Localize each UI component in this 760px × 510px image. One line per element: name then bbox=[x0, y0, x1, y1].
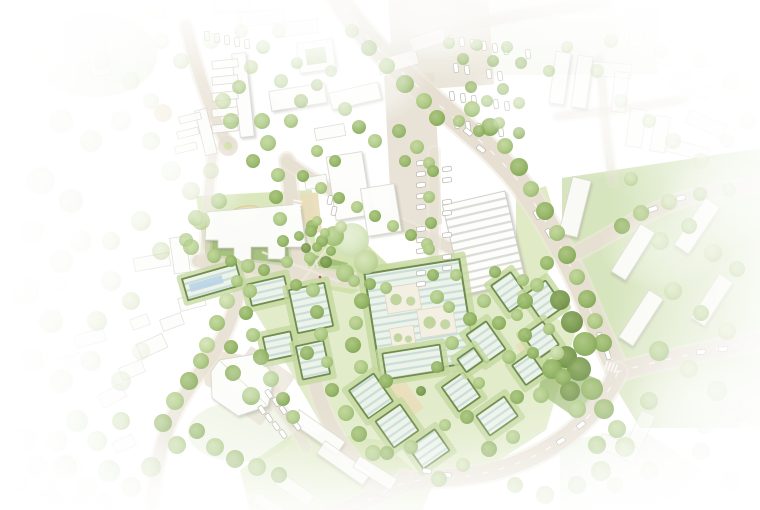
vignette-top bbox=[0, 0, 760, 80]
site-plan-map bbox=[0, 0, 760, 510]
vignette-layer bbox=[0, 0, 760, 510]
vignette-bottom bbox=[0, 440, 760, 510]
site-plan-canvas bbox=[0, 0, 760, 510]
